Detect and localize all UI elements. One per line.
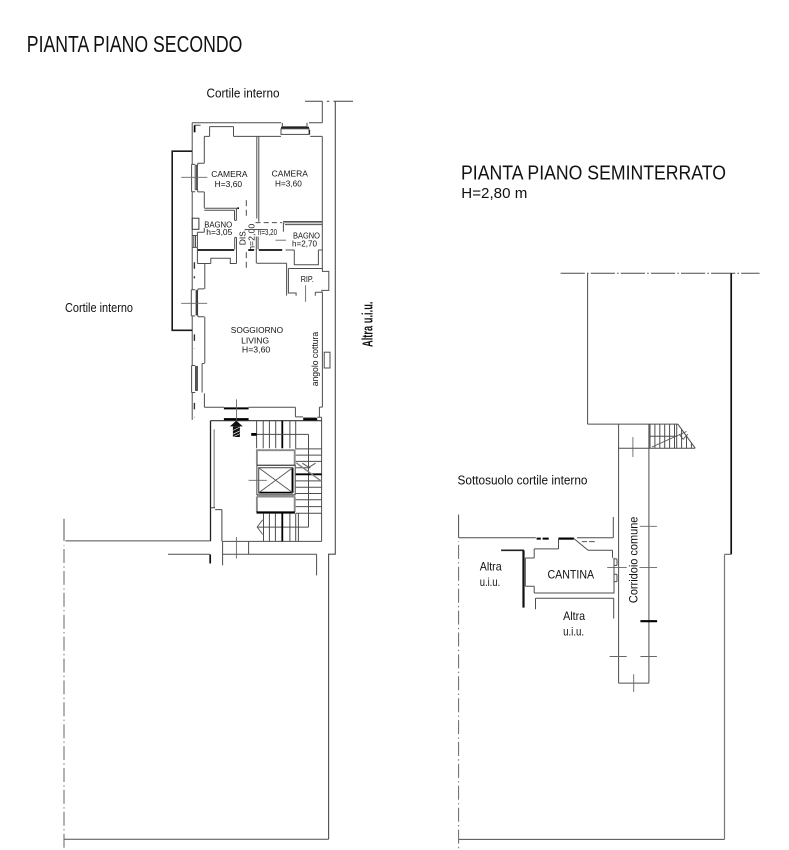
- svg-text:RIP.: RIP.: [301, 275, 314, 284]
- svg-text:Cortile interno: Cortile interno: [207, 86, 280, 101]
- svg-text:Altra u.i.u.: Altra u.i.u.: [360, 302, 376, 348]
- svg-text:angolo cottura: angolo cottura: [310, 331, 321, 386]
- svg-text:H=3,60: H=3,60: [215, 180, 243, 189]
- svg-text:H=2,80 m: H=2,80 m: [461, 185, 527, 202]
- svg-text:Sottosuolo cortile interno: Sottosuolo cortile interno: [458, 473, 588, 488]
- svg-text:CANTINA: CANTINA: [548, 567, 595, 581]
- svg-text:SOGGIORNO: SOGGIORNO: [231, 326, 283, 335]
- svg-text:H=3,60: H=3,60: [242, 345, 271, 354]
- svg-text:h=2,70: h=2,70: [292, 239, 318, 248]
- svg-text:CAMERA: CAMERA: [211, 170, 248, 179]
- svg-text:u.i.u.: u.i.u.: [563, 625, 584, 639]
- svg-text:LIVING: LIVING: [241, 337, 269, 346]
- svg-text:Corridoio comune: Corridoio comune: [627, 516, 641, 603]
- svg-text:PIANTA PIANO SECONDO: PIANTA PIANO SECONDO: [27, 31, 243, 57]
- svg-text:DIS.: DIS.: [238, 229, 247, 245]
- svg-text:h=2,00: h=2,00: [247, 223, 256, 251]
- svg-text:PIANTA PIANO SEMINTERRATO: PIANTA PIANO SEMINTERRATO: [461, 163, 726, 185]
- svg-text:u.i.u.: u.i.u.: [480, 575, 501, 589]
- svg-text:Altra: Altra: [480, 560, 502, 574]
- svg-text:Cortile interno: Cortile interno: [65, 300, 133, 315]
- svg-text:CAMERA: CAMERA: [272, 170, 309, 179]
- svg-text:h=3,05: h=3,05: [206, 228, 233, 237]
- svg-text:Altra: Altra: [563, 609, 585, 623]
- svg-text:H=3,60: H=3,60: [275, 180, 302, 189]
